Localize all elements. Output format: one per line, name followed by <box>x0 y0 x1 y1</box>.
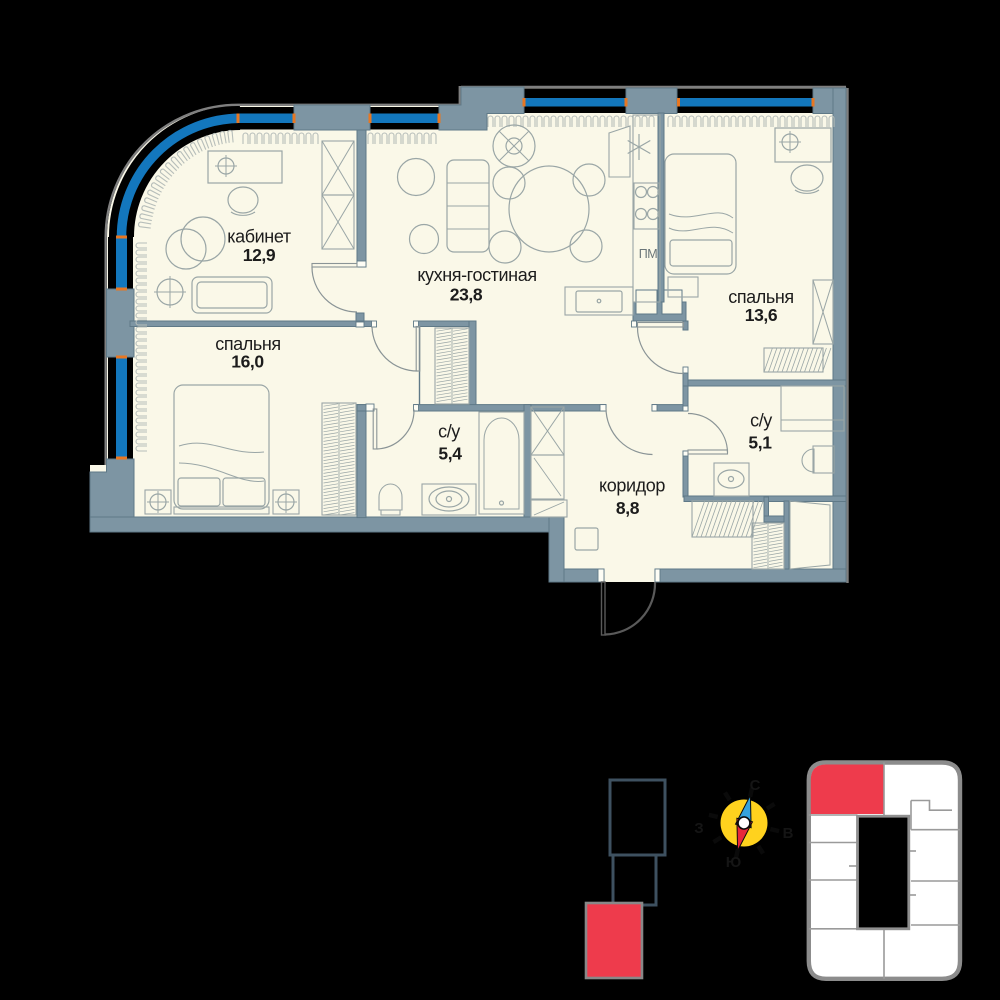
svg-text:23,8: 23,8 <box>450 285 483 305</box>
svg-text:С: С <box>750 777 761 794</box>
svg-text:8,8: 8,8 <box>616 498 640 518</box>
svg-text:5,1: 5,1 <box>748 433 772 453</box>
svg-text:ПМ: ПМ <box>639 247 658 261</box>
svg-text:спальня: спальня <box>728 287 794 307</box>
svg-text:5,4: 5,4 <box>438 444 462 464</box>
svg-text:В: В <box>783 825 794 842</box>
svg-text:13,6: 13,6 <box>745 305 778 325</box>
svg-text:16,0: 16,0 <box>231 352 264 372</box>
svg-text:коридор: коридор <box>599 476 665 496</box>
svg-text:кабинет: кабинет <box>227 227 291 247</box>
svg-text:12,9: 12,9 <box>243 245 276 265</box>
svg-text:З: З <box>694 820 703 837</box>
svg-text:с/у: с/у <box>750 411 772 431</box>
svg-text:кухня-гостиная: кухня-гостиная <box>417 265 536 285</box>
svg-text:Ю: Ю <box>726 854 741 871</box>
svg-text:с/у: с/у <box>438 422 460 442</box>
